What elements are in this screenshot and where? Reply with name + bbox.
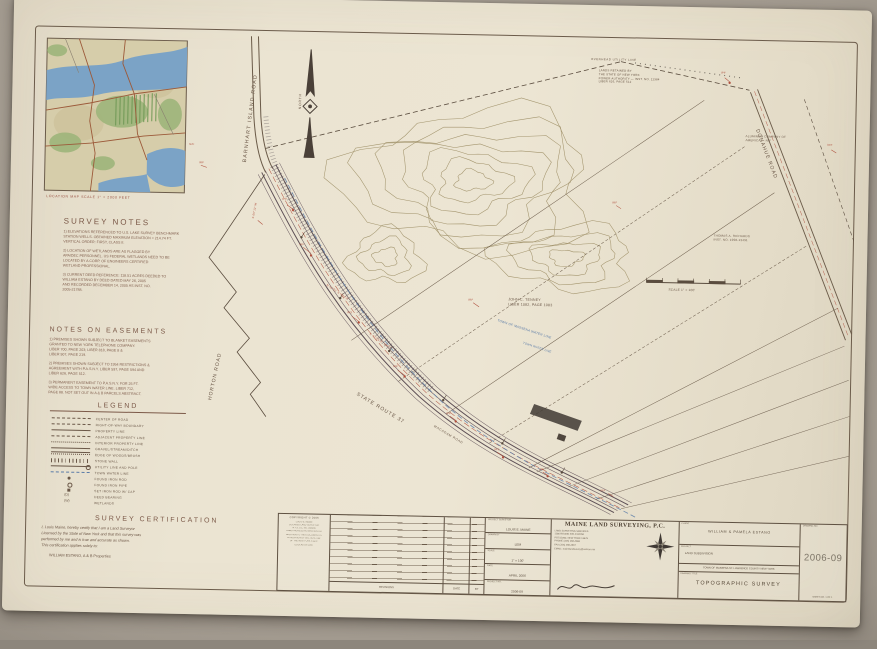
copyright-stamp-cell: COPYRIGHT © 2006 LOUIS E. MAINELICENSED …: [277, 514, 330, 591]
project-name: LAND SUBDIVISION: [685, 551, 798, 557]
company-block: MAINE LAND SURVEYING, P.C. LAND SURVEYIN…: [550, 519, 679, 598]
info-row: PROJECT NO. 2006-09: [485, 580, 550, 596]
map-label: JOHN C. TENNEY LIBER 1082, PAGE 1083: [508, 297, 552, 308]
title-block: COPYRIGHT © 2006 LOUIS E. MAINELICENSED …: [276, 513, 847, 602]
photo-background: LOCATION MAP SCALE 1" = 2000 FEET SURVEY…: [0, 0, 877, 640]
map-label: IRF: [612, 201, 617, 204]
map-label: IRF: [299, 243, 304, 246]
easement-note: 1) PREMISES SHOWN SUBJECT TO BLANKET EAS…: [49, 337, 239, 361]
client-row: CLIENT WILLIAM & PAMELA ESTANO: [679, 522, 800, 547]
location-map-inset: [44, 38, 187, 193]
easement-note: 2) PREMISES SHOWN SUBJECT TO 1954 RESTRI…: [49, 361, 239, 380]
map-label: IPF: [282, 198, 287, 201]
client-block: CLIENT WILLIAM & PAMELA ESTANO PROJECT L…: [678, 522, 801, 600]
north-arrow: [302, 49, 318, 157]
map-label: IRF: [468, 299, 473, 302]
utility-poles: [296, 232, 570, 473]
boundary-lines: [206, 53, 857, 428]
info-label: DATE: [487, 565, 493, 567]
map-label: LANDS RETAINED BY THE STATE OF NEW YORK …: [599, 69, 660, 85]
revisions-grid: [329, 515, 485, 585]
certification-panel: SURVEY CERTIFICATION I, Louis Maine, her…: [41, 514, 272, 561]
contour-lines: [322, 94, 634, 295]
stamp-line: EDUCATION LAW: [280, 543, 327, 547]
map-label: IPF: [721, 72, 726, 75]
legend-label: SET IRON ROD W/ CAP: [94, 489, 135, 494]
drawing-title-row: DRAWING TITLE TOPOGRAPHIC SURVEY: [678, 572, 799, 600]
info-row: PROJECT SURVEYOR LOUIS E. MAINE: [486, 518, 551, 535]
info-label: PROJECT NO.: [487, 581, 502, 583]
map-label: IRF: [199, 161, 204, 164]
sheet-number: SHEET NO. 1 OF 1: [799, 596, 845, 599]
project-label: PROJECT: [681, 546, 691, 548]
company-address: LAND SURVEYING SERVICES1186 ROUND FIELD …: [554, 529, 645, 566]
info-row: DRAWN BY LEM: [485, 533, 550, 550]
survey-notes-list: 1) ELEVATIONS REFERENCED TO U.S. LAKE SU…: [62, 229, 235, 296]
map-label: NORTH: [298, 93, 302, 109]
drawing-title-label: DRAWING TITLE: [680, 573, 697, 575]
revisions-table: REVISIONS DATE BY: [329, 515, 486, 594]
survey-note: 2) LOCATION OF WETLANDS ARE AS FLAGGED B…: [63, 249, 235, 273]
map-label: IPF: [446, 412, 451, 415]
project-row: PROJECT LAND SUBDIVISION: [679, 545, 800, 566]
fan-lines: [536, 340, 851, 513]
stamp-lines: LOUIS E. MAINELICENSED LAND SURVEYORN.Y.…: [280, 520, 327, 547]
signature-icon: [556, 580, 616, 593]
map-label: ALUMINUM COMPANY OF AMERICA — N/F: [745, 134, 786, 143]
legend-label: STONE WALL: [95, 459, 118, 463]
map-label: IRS: [347, 311, 352, 314]
shed: [557, 433, 567, 441]
project-info-column: PROJECT SURVEYOR LOUIS E. MAINE DRAWN BY…: [485, 518, 552, 595]
revisions-header: REVISIONS: [329, 585, 443, 590]
state-route-37: [251, 162, 643, 518]
survey-notes-panel: SURVEY NOTES 1) ELEVATIONS REFERENCED TO…: [62, 216, 236, 300]
client-name: WILLIAM & PAMELA ESTANO: [681, 529, 798, 535]
info-label: DRAWN BY: [488, 534, 500, 536]
compass-area: [645, 531, 676, 567]
legend-label: GRAVEL/STREAM/DITCH: [95, 447, 138, 452]
legend-label: TOWN WATER LINE: [95, 471, 129, 476]
legend-label: FOUND IRON ROD: [95, 477, 127, 482]
drawing-number-block: DRAWING NO. 2006-09 SHEET NO. 1 OF 1: [799, 524, 846, 601]
legend-label: DEED BEARING: [94, 495, 122, 500]
legend-panel: LEGEND CENTER OF ROAD RIGHT-OF-WAY BOUND…: [48, 401, 186, 508]
client-label: CLIENT: [681, 523, 689, 525]
survey-note: 1) ELEVATIONS REFERENCED TO U.S. LAKE SU…: [63, 229, 235, 248]
info-row: DATE APRIL 2006: [485, 564, 550, 581]
info-row: SCALE 1" = 100': [485, 549, 550, 566]
revisions-by-header: BY: [470, 588, 484, 591]
sheet-content: LOCATION MAP SCALE 1" = 2000 FEET SURVEY…: [0, 0, 877, 649]
red-survey-marks: [194, 67, 837, 501]
compass-rose-icon: [645, 531, 676, 562]
info-value: APRIL 2006: [485, 573, 550, 578]
scale-bar: [647, 278, 741, 284]
drawing-number-label: DRAWING NO.: [803, 525, 818, 527]
legend-label: PROPERTY LINE: [95, 429, 124, 434]
revisions-date-header: DATE: [444, 587, 470, 591]
map-label: IRF: [393, 365, 398, 368]
info-value: 1" = 100': [485, 558, 550, 563]
survey-note: 3) CURRENT DEED REFERENCE: 118.51 ACRES …: [62, 273, 234, 297]
info-label: PROJECT SURVEYOR: [488, 519, 511, 521]
info-value: 2006-09: [485, 589, 550, 594]
info-label: SCALE: [487, 550, 494, 552]
legend-label: CENTER OF ROAD: [96, 417, 129, 422]
map-label: THOMAS A. RICHARDS INST. NO. 1998-13491: [713, 234, 750, 243]
legend-title: LEGEND: [50, 401, 186, 414]
legend-label: FOUND IRON PIPE: [94, 483, 127, 488]
legend-label: UTILITY LINE AND POLE: [95, 465, 138, 470]
map-label: SCALE 1" = 100': [668, 289, 695, 293]
company-address-line: EMAIL: mainelandsurvey@verizon.net: [554, 547, 645, 552]
copyright-text: COPYRIGHT © 2006: [281, 515, 328, 519]
survey-sheet: LOCATION MAP SCALE 1" = 2000 FEET SURVEY…: [2, 0, 872, 628]
map-label: IRS: [494, 448, 499, 451]
legend-list: CENTER OF ROAD RIGHT-OF-WAY BOUNDARY PRO…: [48, 415, 186, 508]
drawing-title: TOPOGRAPHIC SURVEY: [680, 580, 797, 588]
map-label: IRF: [827, 144, 832, 147]
revisions-footer: REVISIONS DATE BY: [329, 581, 484, 594]
info-value: LOUIS E. MAINE: [486, 527, 551, 532]
certification-body: I, Louis Maine, hereby certify that I am…: [41, 525, 271, 553]
legend-symbol: (W): [48, 499, 94, 506]
building: [530, 404, 583, 431]
map-label: N/F: [189, 143, 194, 146]
donahue-road: [746, 89, 857, 340]
drawing-number: 2006-09: [800, 552, 846, 564]
legend-label: WETLANDS: [94, 501, 114, 505]
map-label: IRF: [600, 489, 605, 492]
info-value: LEM: [486, 542, 551, 547]
map-label: IRF: [539, 468, 544, 471]
